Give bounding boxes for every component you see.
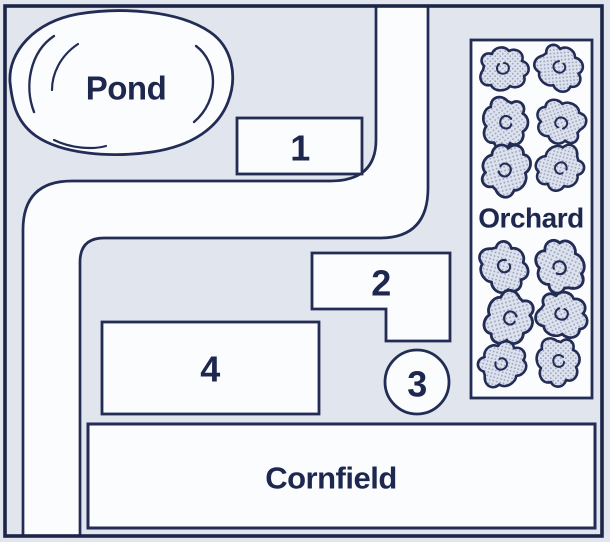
building-3-label: 3 — [407, 364, 427, 405]
cornfield: Cornfield — [88, 424, 595, 528]
cornfield-label: Cornfield — [265, 461, 397, 496]
tree-icon — [537, 338, 580, 386]
building-1: 1 — [237, 118, 362, 174]
orchard: Orchard — [471, 37, 594, 398]
farm-map-canvas: Pond 1 2 3 4 Cornfield — [0, 0, 610, 542]
building-2-label: 2 — [371, 263, 391, 304]
building-4: 4 — [102, 322, 319, 414]
building-3: 3 — [385, 350, 449, 414]
tree-icon — [480, 47, 528, 90]
building-4-label: 4 — [200, 349, 220, 390]
farm-map: Pond 1 2 3 4 Cornfield — [0, 0, 610, 542]
pond: Pond — [10, 11, 233, 155]
building-1-label: 1 — [290, 128, 310, 169]
orchard-label: Orchard — [478, 203, 583, 234]
pond-label: Pond — [86, 70, 166, 107]
